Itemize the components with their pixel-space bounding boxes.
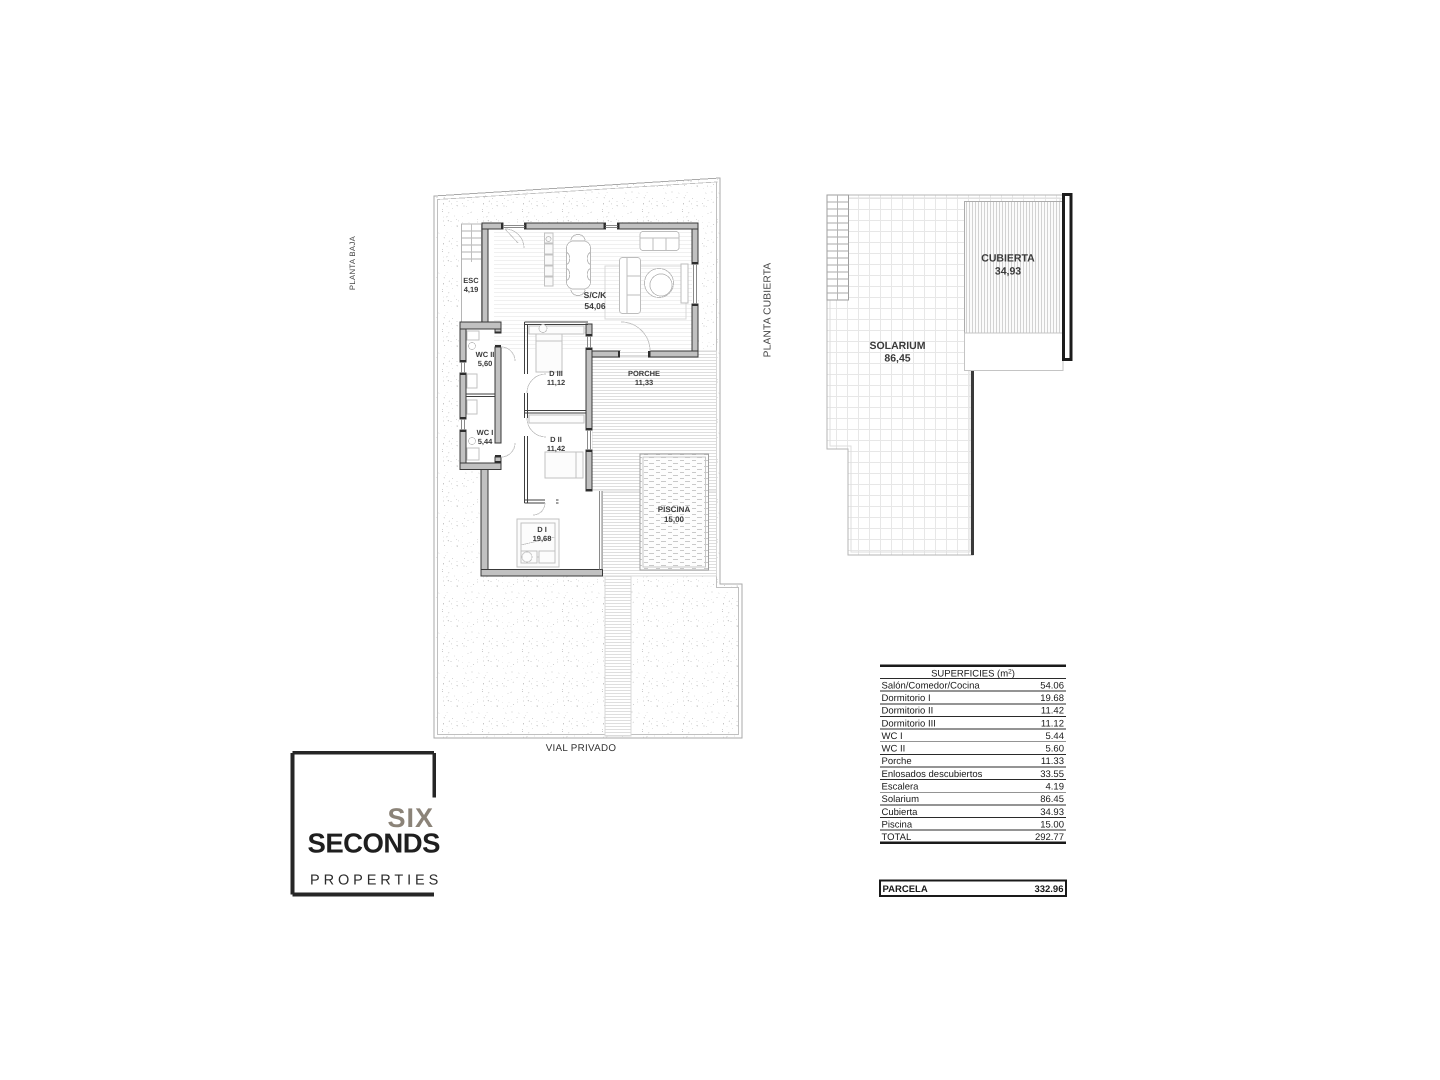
svg-text:11,42: 11,42 [547,444,565,453]
svg-text:PROPERTIES: PROPERTIES [310,873,442,889]
svg-text:19,68: 19,68 [533,534,552,543]
svg-text:Solarium: Solarium [882,794,920,805]
svg-text:CUBIERTA: CUBIERTA [981,253,1035,265]
svg-text:PLANTA CUBIERTA: PLANTA CUBIERTA [763,263,774,358]
svg-text:VIAL PRIVADO: VIAL PRIVADO [546,743,617,754]
svg-text:PISCINA: PISCINA [658,505,691,514]
svg-text:15.00: 15.00 [1040,819,1064,830]
svg-text:Salón/Comedor/Cocina: Salón/Comedor/Cocina [882,680,981,691]
svg-text:D II: D II [550,435,562,444]
svg-text:54.06: 54.06 [1040,680,1064,691]
svg-text:4,19: 4,19 [464,285,479,294]
svg-text:11.12: 11.12 [1041,718,1064,729]
svg-text:4.19: 4.19 [1046,782,1065,793]
svg-text:WC II: WC II [882,744,906,755]
svg-text:15,00: 15,00 [664,515,685,524]
svg-text:PLANTA BAJA: PLANTA BAJA [348,235,357,290]
svg-text:332.96: 332.96 [1034,884,1063,895]
svg-text:5.44: 5.44 [1046,731,1065,742]
svg-text:WC II: WC II [476,350,495,359]
svg-text:Enlosados descubiertos: Enlosados descubiertos [882,769,983,780]
svg-text:11.42: 11.42 [1041,706,1064,717]
svg-text:Escalera: Escalera [882,782,920,793]
svg-text:D III: D III [549,369,563,378]
svg-text:PORCHE: PORCHE [628,369,660,378]
svg-text:34.93: 34.93 [1040,807,1064,818]
svg-text:54,06: 54,06 [584,301,606,311]
svg-text:Cubierta: Cubierta [882,807,919,818]
svg-text:11,12: 11,12 [547,378,565,387]
svg-text:D I: D I [537,525,547,534]
svg-text:Porche: Porche [882,756,912,767]
svg-text:5.60: 5.60 [1046,744,1065,755]
svg-text:5,60: 5,60 [478,359,493,368]
svg-text:Dormitorio I: Dormitorio I [882,693,931,704]
svg-text:5,44: 5,44 [478,437,493,446]
svg-text:WC I: WC I [477,428,494,437]
svg-text:Dormitorio III: Dormitorio III [882,718,936,729]
svg-text:86.45: 86.45 [1040,794,1064,805]
svg-text:33.55: 33.55 [1040,769,1064,780]
svg-text:Piscina: Piscina [882,819,913,830]
svg-text:S/C/K: S/C/K [584,290,608,300]
svg-text:TOTAL: TOTAL [882,832,912,843]
svg-text:11,33: 11,33 [635,378,653,387]
svg-text:19.68: 19.68 [1040,693,1064,704]
svg-text:292.77: 292.77 [1035,832,1064,843]
svg-text:PARCELA: PARCELA [883,884,928,895]
svg-text:86,45: 86,45 [884,353,910,365]
svg-text:WC I: WC I [882,731,903,742]
svg-text:SECONDS: SECONDS [308,828,441,859]
svg-text:34,93: 34,93 [995,266,1021,278]
svg-text:11.33: 11.33 [1041,756,1064,767]
svg-text:ESC: ESC [463,276,479,285]
svg-text:SUPERFICIES (m2): SUPERFICIES (m2) [931,669,1015,680]
svg-text:SOLARIUM: SOLARIUM [870,340,926,352]
svg-text:Dormitorio II: Dormitorio II [882,706,934,717]
